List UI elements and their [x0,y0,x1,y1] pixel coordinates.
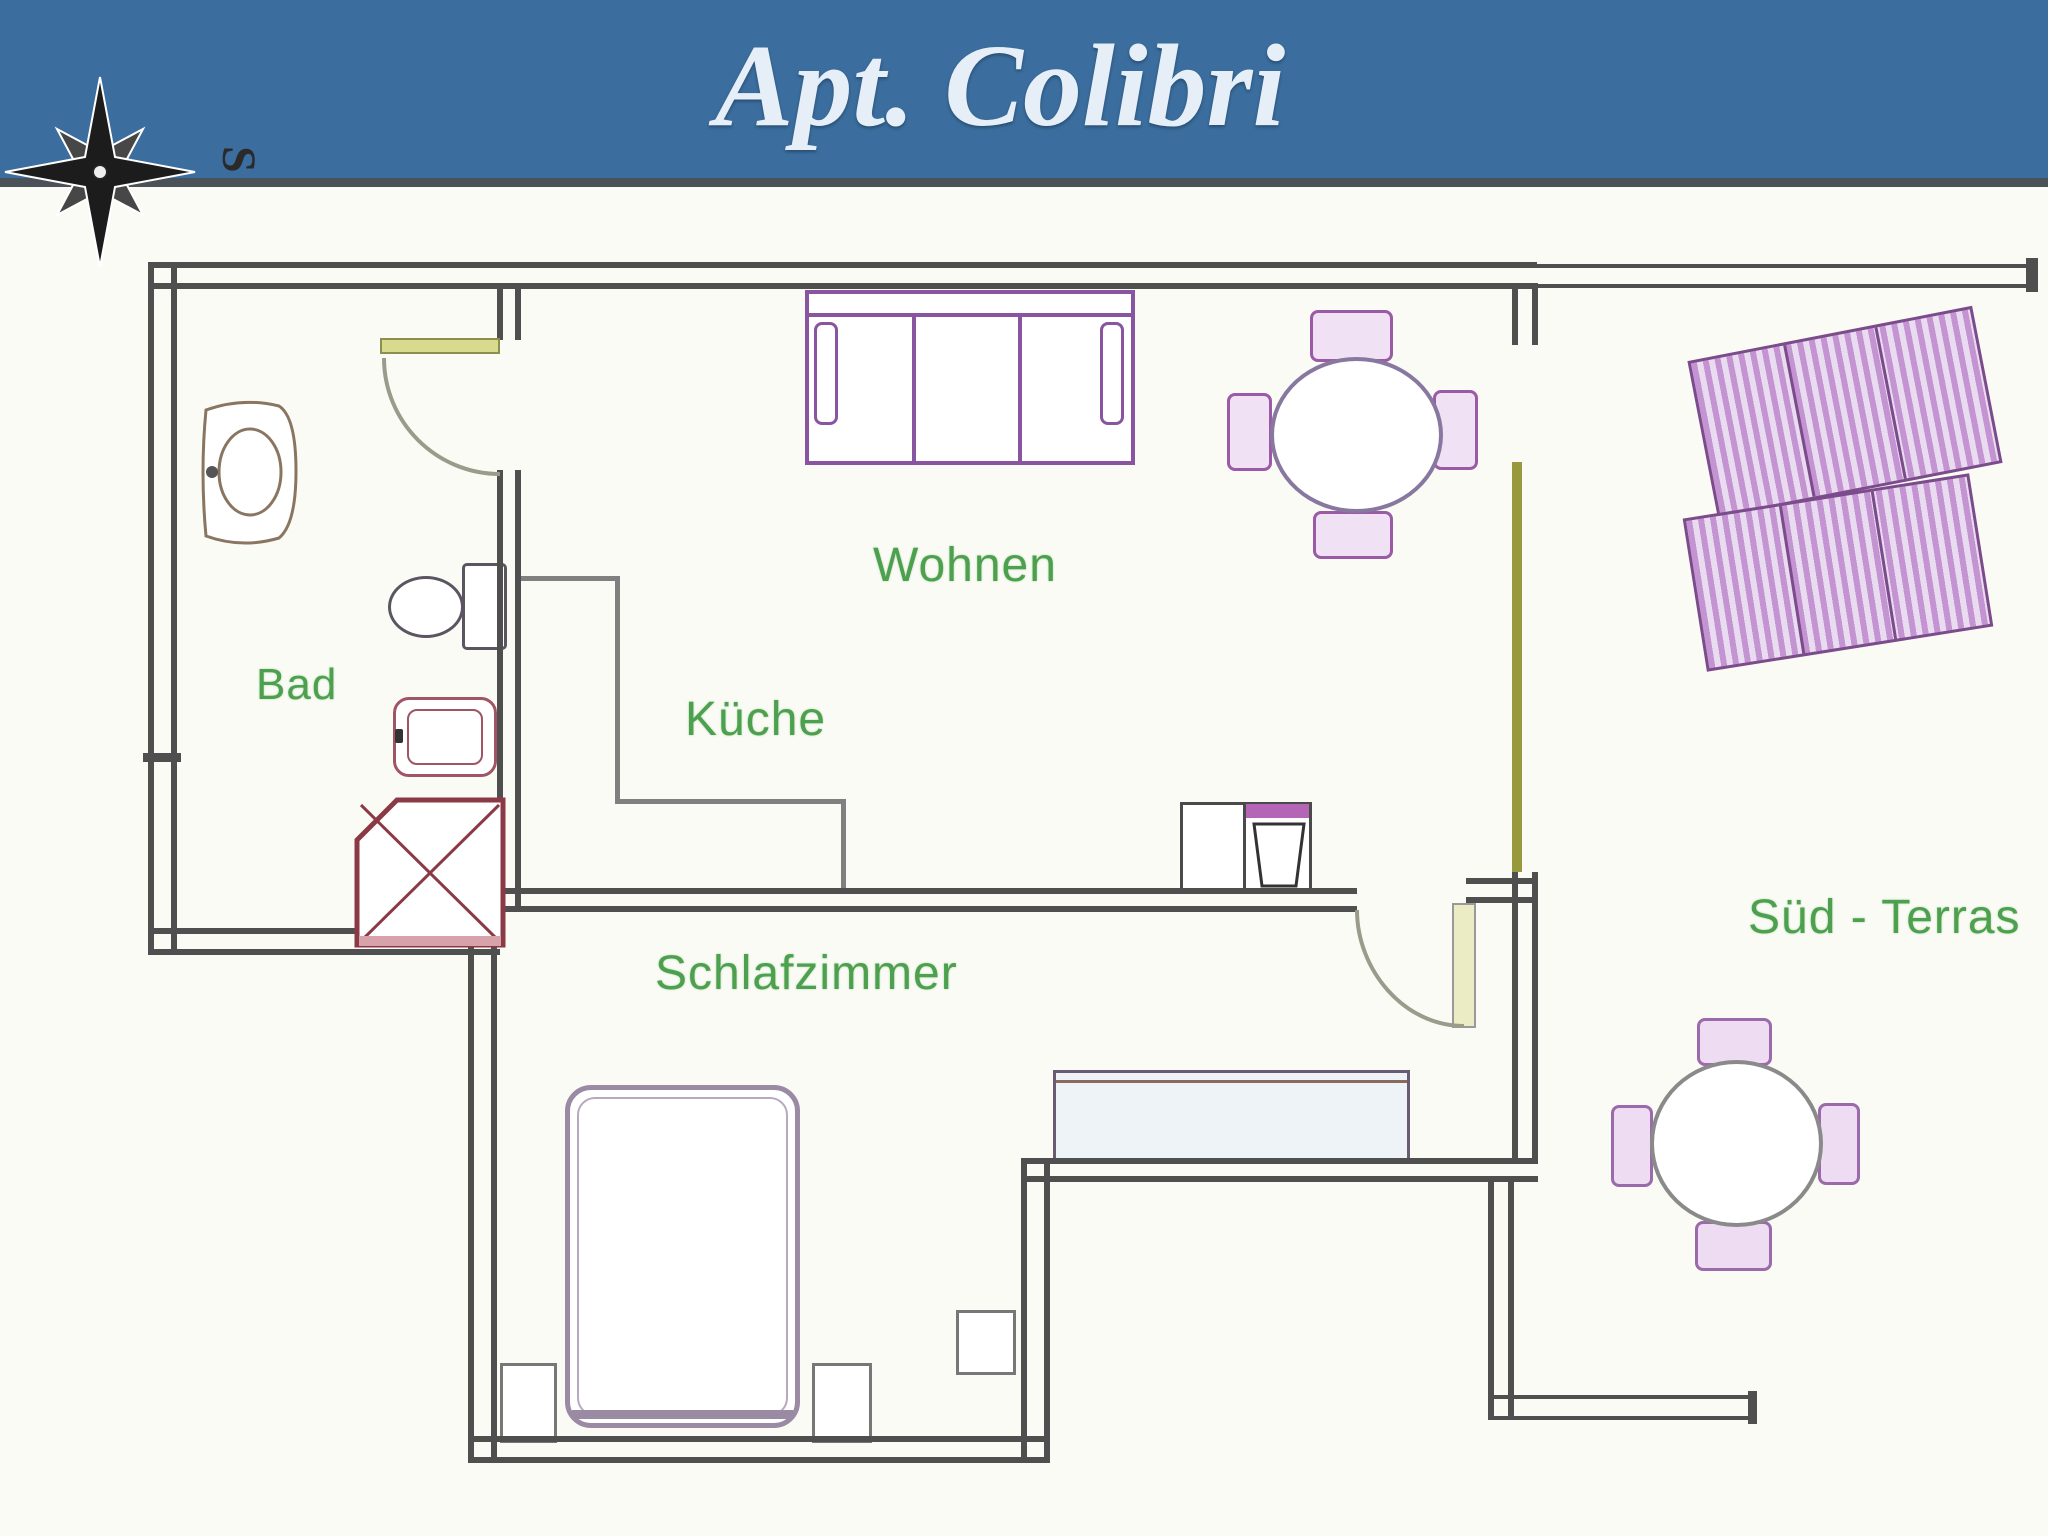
wall-bath-south [148,928,500,955]
room-label-kitchen: Küche [685,692,826,747]
floor-plan-page: Apt. Colibri S [0,0,2048,1536]
wall-bedroom-west [468,928,497,1463]
room-label-terrace: Süd - Terras [1748,890,2021,945]
lounger-divider [1783,345,1815,497]
kitchen-counter-edge [615,799,845,804]
nightstand-left [500,1363,557,1443]
wall-north [148,262,1537,289]
sofa-seat-divider [912,317,916,461]
terrace-chair-top [1697,1018,1772,1066]
room-label-bedroom: Schlafzimmer [655,946,958,1001]
shower [357,800,503,946]
terrace-chair-right [1818,1103,1860,1185]
bedroom-door-arc [1357,910,1464,1026]
sofa-seat-divider [1018,317,1022,461]
wardrobe [1053,1070,1410,1162]
side-table [956,1310,1016,1375]
wall-living-bedroom [497,888,1357,912]
terrace-table [1650,1060,1823,1227]
wall-living-terrace-lower [1512,872,1538,1161]
lounger-divider [1875,327,1907,479]
kitchen-unit-top-bar [1246,804,1309,818]
bedroom-door-leaf [1452,903,1476,1028]
bed-foot-edge [572,1410,793,1419]
page-title: Apt. Colibri [520,18,1480,154]
dining-chair-bottom [1313,511,1393,559]
bidet-basin [407,709,483,765]
bidet-tap [395,729,403,743]
lounger-divider [1779,506,1805,654]
bed-inner-outline [577,1097,788,1416]
wall-west [148,262,177,955]
terrace-north-railing [1537,264,2035,288]
wall-door-jamb [1466,878,1538,903]
room-label-living: Wohnen [873,538,1057,593]
wall-bedroom-south [468,1436,1050,1463]
terrace-chair-bottom [1695,1221,1772,1271]
dining-chair-left [1227,393,1272,471]
toilet-bowl [388,576,464,638]
dining-table [1270,357,1443,513]
dining-chair-top [1310,310,1393,362]
bathroom-door-leaf [380,338,500,354]
sofa-armrest-left [814,322,838,425]
wall-bedroom-southeast [1021,1158,1538,1182]
wall-bath-kitchen-upper [497,283,521,340]
kitchen-counter-edge [841,799,846,892]
wall-terrace-west-lower [1488,1182,1514,1420]
wall-terrace-south [1488,1395,1757,1420]
terrace-wall-end-cap [1748,1391,1757,1424]
sofa-backrest [809,313,1131,317]
header-divider [0,178,2048,187]
railing-end-cap [2026,258,2038,292]
wardrobe-front-line [1056,1080,1407,1083]
kitchen-counter-edge [615,576,620,804]
room-label-bathroom: Bad [256,660,337,710]
lounger-divider [1871,491,1897,639]
washbasin [203,402,296,543]
wall-living-terrace-upper [1512,283,1538,345]
terrace-chair-left [1611,1105,1653,1187]
compass-south-label: S [206,146,266,206]
nightstand-right [812,1363,872,1443]
sofa-armrest-right [1100,322,1124,425]
sliding-glass-door [1512,462,1522,872]
bathroom-door-arc [384,358,500,474]
kitchen-counter-edge [521,576,619,581]
wall-bedroom-east-lower [1021,1158,1050,1463]
window-marker [143,753,181,762]
wall-bath-kitchen-lower [497,470,521,912]
